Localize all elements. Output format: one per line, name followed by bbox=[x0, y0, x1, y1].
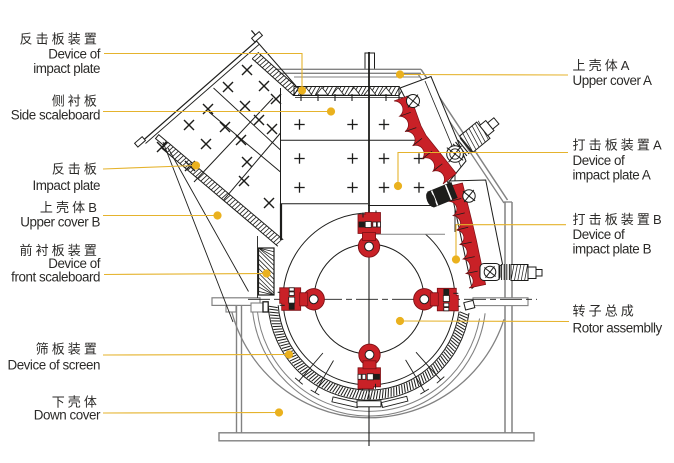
svg-text:Impact plate: Impact plate bbox=[32, 178, 100, 193]
svg-text:反击板: 反击板 bbox=[52, 162, 100, 177]
svg-text:Upper cover A: Upper cover A bbox=[573, 73, 653, 88]
svg-text:Device of: Device of bbox=[573, 153, 625, 168]
svg-text:Rotor assemblly: Rotor assemblly bbox=[573, 321, 663, 336]
svg-text:打击板装置A: 打击板装置A bbox=[573, 138, 665, 153]
svg-text:打击板装置B: 打击板装置B bbox=[573, 212, 665, 227]
svg-text:Device of: Device of bbox=[573, 227, 625, 242]
svg-text:上壳体B: 上壳体B bbox=[40, 200, 100, 215]
svg-text:Down cover: Down cover bbox=[34, 408, 101, 423]
svg-text:impact plate A: impact plate A bbox=[573, 168, 651, 183]
svg-text:反击板装置: 反击板装置 bbox=[19, 32, 100, 47]
svg-text:impact plate: impact plate bbox=[33, 61, 100, 76]
svg-text:Side scaleboard: Side scaleboard bbox=[11, 108, 100, 123]
svg-text:Upper cover B: Upper cover B bbox=[20, 215, 100, 230]
svg-text:impact plate B: impact plate B bbox=[573, 242, 652, 257]
svg-text:筛板装置: 筛板装置 bbox=[36, 342, 100, 357]
svg-text:转子总成: 转子总成 bbox=[573, 304, 637, 319]
svg-text:Device of screen: Device of screen bbox=[7, 358, 100, 373]
svg-text:Device of: Device of bbox=[48, 47, 100, 62]
svg-text:front scaleboard: front scaleboard bbox=[11, 270, 100, 285]
svg-text:侧衬板: 侧衬板 bbox=[52, 94, 100, 109]
svg-text:上壳体A: 上壳体A bbox=[573, 58, 633, 73]
